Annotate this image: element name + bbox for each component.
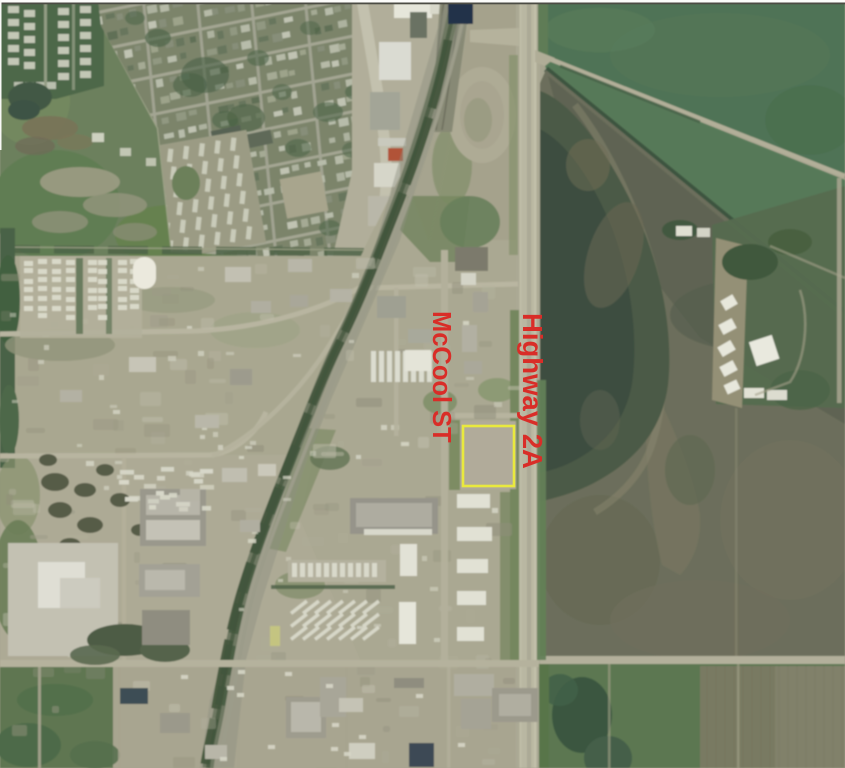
svg-text:Highway 2A: Highway 2A (517, 313, 548, 469)
svg-text:McCool ST: McCool ST (427, 311, 455, 443)
